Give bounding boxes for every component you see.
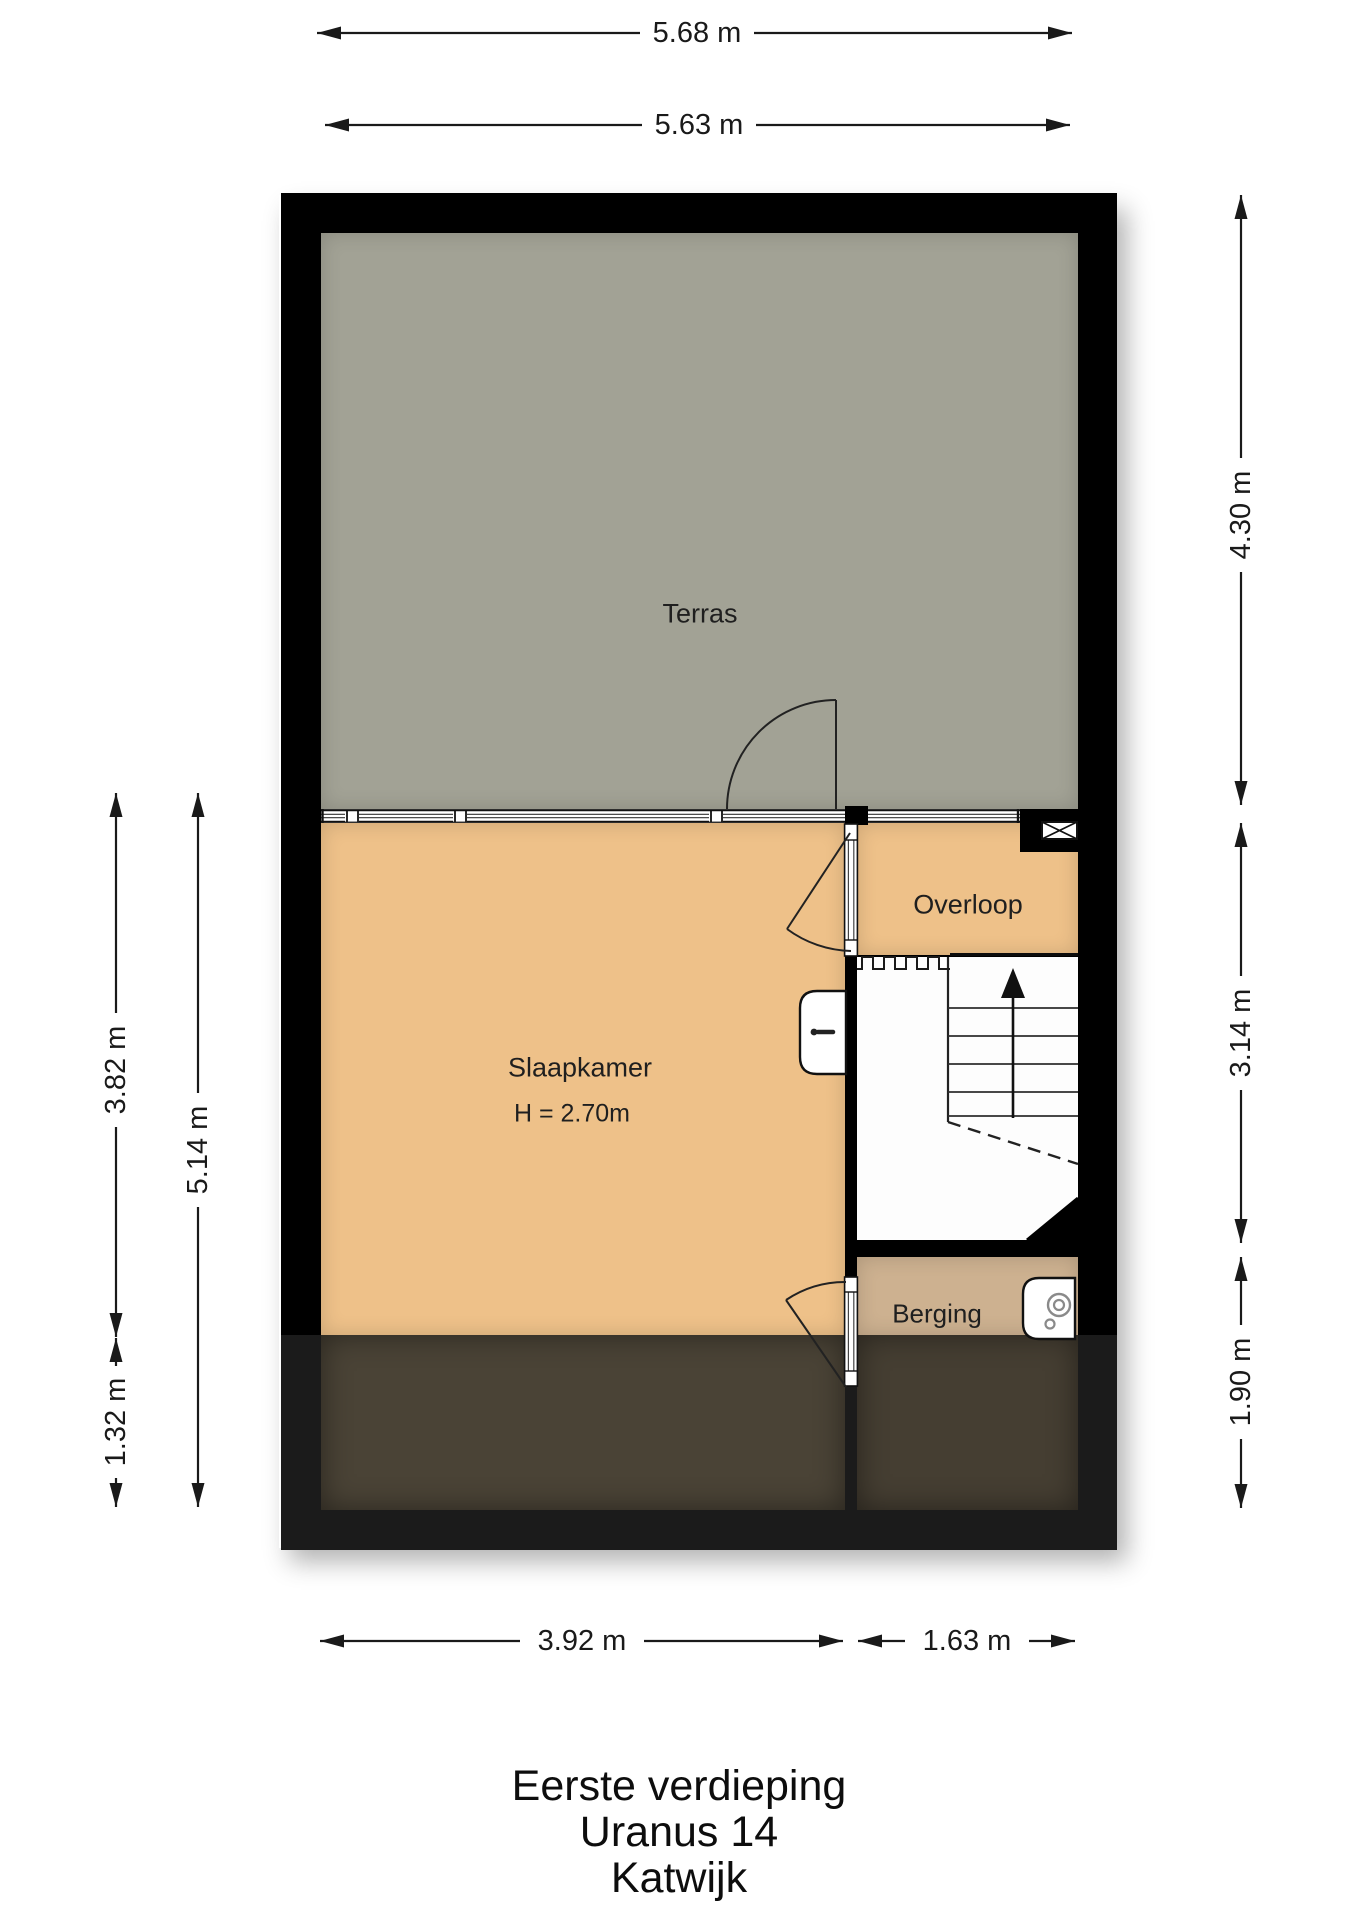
slaapkamer-label: Slaapkamer <box>508 1053 652 1084</box>
overloop-label: Overloop <box>913 890 1023 921</box>
floorplan-page: 5.68 m 5.63 m 4.30 m 3.14 m 1.90 m 3.82 … <box>0 0 1358 1920</box>
slaapkamer-ceiling-height: H = 2.70m <box>514 1100 630 1129</box>
dim-right-upper: 4.30 m <box>1225 471 1257 560</box>
title-block: Eerste verdieping Uranus 14 Katwijk <box>0 1763 1358 1901</box>
dim-top-inner: 5.63 m <box>655 109 744 141</box>
dim-left-full: 5.14 m <box>182 1106 214 1195</box>
berging-label: Berging <box>892 1299 982 1330</box>
dim-right-middle: 3.14 m <box>1225 989 1257 1078</box>
wall-under-stairs <box>845 1240 1078 1257</box>
dim-bottom-left: 3.92 m <box>538 1625 627 1657</box>
plan-linework: 5.68 m 5.63 m 4.30 m 3.14 m 1.90 m 3.82 … <box>0 0 1358 1920</box>
dim-top-outer: 5.68 m <box>653 17 742 49</box>
stairwell <box>845 955 1078 1258</box>
berging-door <box>786 1277 857 1387</box>
terras-label: Terras <box>662 599 737 630</box>
title-line-floor: Eerste verdieping <box>0 1763 1358 1809</box>
title-line-address: Uranus 14 <box>0 1809 1358 1855</box>
dim-left-upper: 3.82 m <box>100 1026 132 1115</box>
slaapkamer-door <box>787 824 857 956</box>
window-band <box>321 809 1020 823</box>
wall-post-band <box>845 806 868 825</box>
flue-x-icon <box>1042 822 1077 839</box>
sink-icon <box>800 991 846 1074</box>
boiler-icon <box>1023 1278 1075 1339</box>
dim-right-lower: 1.90 m <box>1225 1338 1257 1427</box>
title-line-city: Katwijk <box>0 1855 1358 1901</box>
dim-bottom-right: 1.63 m <box>923 1625 1012 1657</box>
terras-door <box>727 700 836 809</box>
dim-left-lower: 1.32 m <box>100 1378 132 1467</box>
